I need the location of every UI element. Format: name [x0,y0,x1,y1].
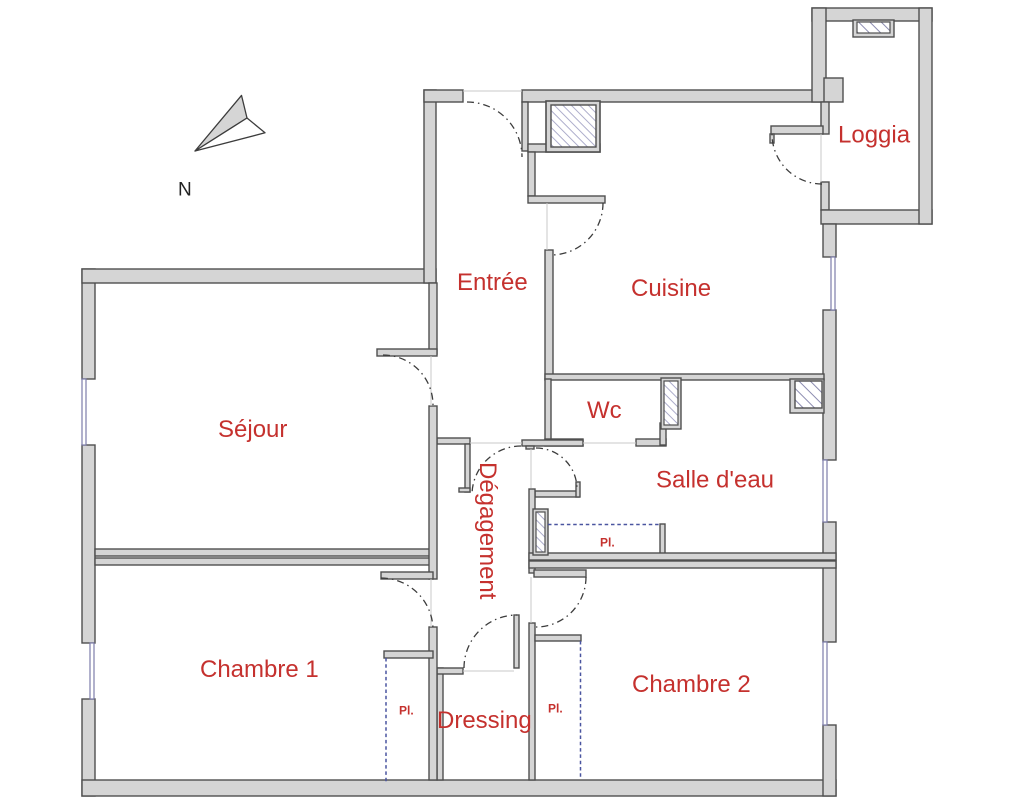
svg-text:Dégagement: Dégagement [474,462,501,600]
svg-text:Loggia: Loggia [838,122,911,149]
svg-text:Pl.: Pl. [399,704,414,718]
svg-text:Séjour: Séjour [218,416,287,443]
svg-text:Cuisine: Cuisine [631,275,711,302]
svg-text:Dressing: Dressing [437,707,532,734]
svg-text:Salle d'eau: Salle d'eau [656,467,774,494]
svg-text:Pl.: Pl. [548,702,563,716]
svg-text:Pl.: Pl. [600,536,615,550]
svg-text:Chambre 2: Chambre 2 [632,671,751,698]
svg-text:Wc: Wc [587,397,622,424]
svg-text:Entrée: Entrée [457,269,528,296]
svg-text:Chambre 1: Chambre 1 [200,656,319,683]
svg-text:N: N [178,180,192,201]
